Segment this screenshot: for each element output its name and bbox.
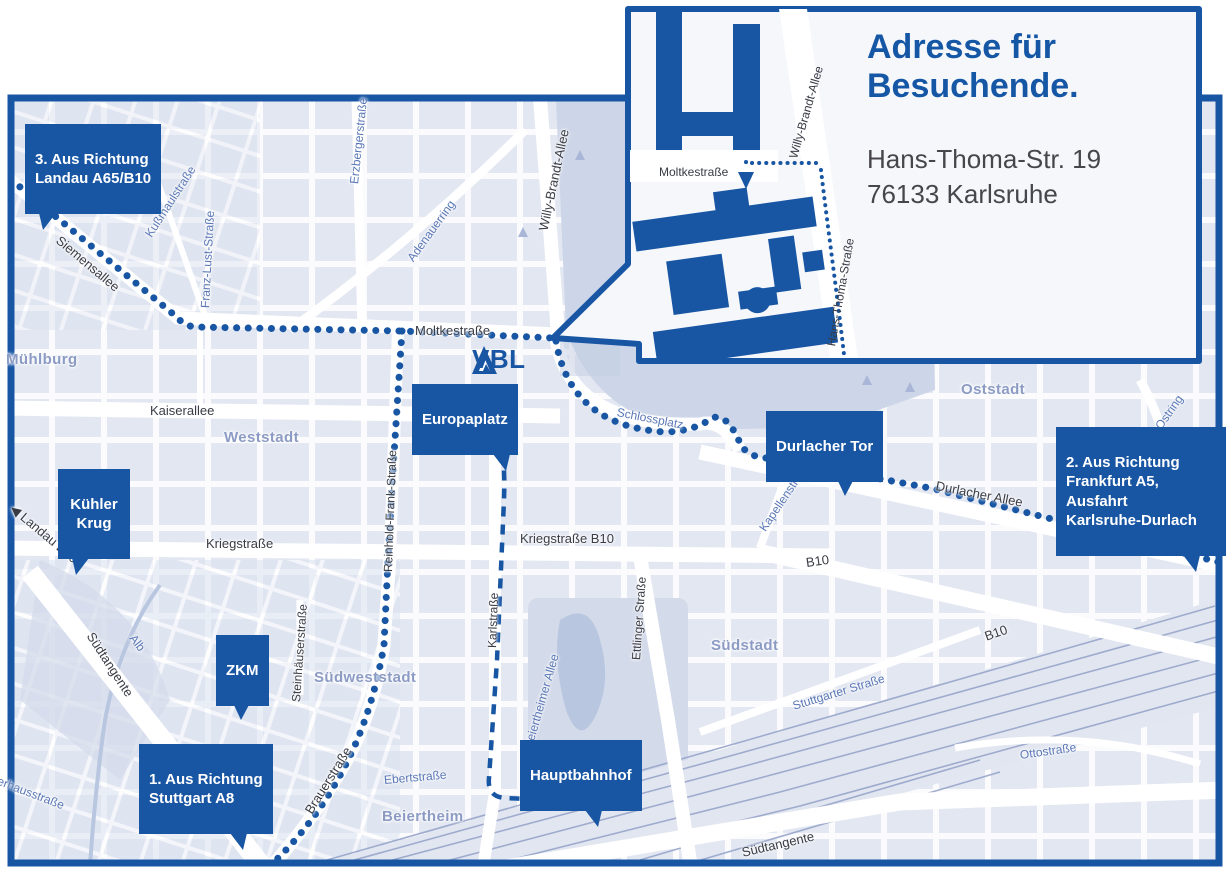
vbl-logo: VBL	[470, 344, 526, 375]
callout-pointer	[493, 454, 510, 471]
callout-europaplatz: Europaplatz	[412, 384, 518, 455]
callout-zkm: ZKM	[216, 635, 269, 706]
callout-kuehler-krug: Kühler Krug	[58, 469, 130, 559]
vbl-logo-text: VBL	[472, 344, 526, 375]
inset-address-line2: 76133 Karlsruhe	[867, 177, 1101, 212]
callout-hauptbahnhof: Hauptbahnhof	[520, 740, 642, 811]
callout-pointer	[230, 833, 247, 850]
callout-pointer	[233, 703, 250, 720]
callout-text: ZKM	[226, 662, 259, 679]
callout-text: Europaplatz	[422, 411, 508, 428]
callout-text: 1. Aus Richtung Stuttgart A8	[149, 771, 263, 808]
inset-address: Hans-Thoma-Str. 19 76133 Karlsruhe	[867, 142, 1101, 212]
callout-durlacher-tor: Durlacher Tor	[766, 411, 883, 482]
callout-from-landau: 3. Aus Richtung Landau A65/B10	[25, 124, 161, 214]
callout-from-stuttgart: 1. Aus Richtung Stuttgart A8	[139, 744, 273, 834]
callout-text: Durlacher Tor	[776, 438, 873, 455]
callout-pointer	[837, 479, 854, 496]
callout-text: Kühler Krug	[70, 496, 118, 533]
callout-pointer	[39, 213, 56, 230]
callout-text: 2. Aus Richtung Frankfurt A5, Ausfahrt K…	[1066, 454, 1197, 530]
callout-pointer	[72, 558, 89, 575]
callout-text: 3. Aus Richtung Landau A65/B10	[35, 151, 151, 188]
inset-address-line1: Hans-Thoma-Str. 19	[867, 142, 1101, 177]
map-page: SiemensalleeKußmaulstraßeFranz-Lust-Stra…	[0, 0, 1230, 874]
callout-pointer	[1183, 555, 1200, 572]
inset-title: Adresse für Besuchende.	[867, 28, 1079, 106]
callout-from-frankfurt: 2. Aus Richtung Frankfurt A5, Ausfahrt K…	[1056, 427, 1226, 556]
callout-text: Hauptbahnhof	[530, 767, 632, 784]
callout-pointer	[585, 810, 602, 827]
